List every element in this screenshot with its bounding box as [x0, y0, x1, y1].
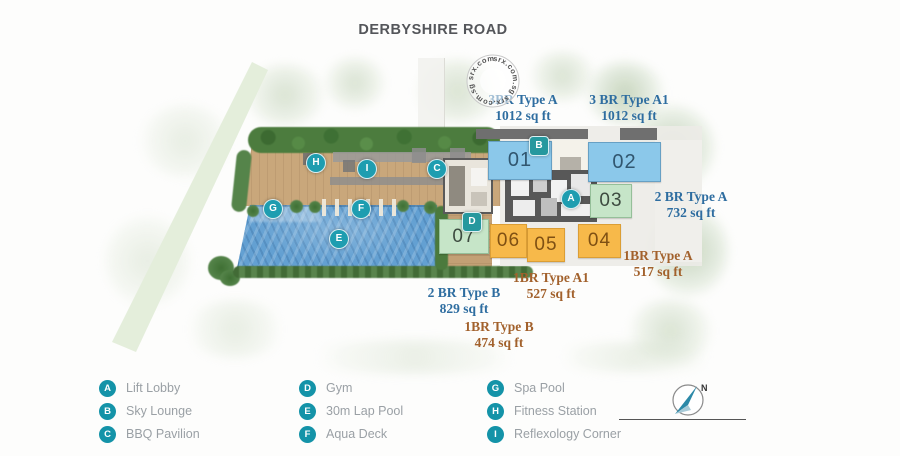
legend-item-lap-pool: E 30m Lap Pool	[299, 402, 403, 420]
legend-item-gym: D Gym	[299, 379, 352, 397]
watermark-stamp: srx.com.sg srx.com.sg srx.com.sg	[456, 44, 530, 118]
gym-room	[471, 168, 487, 186]
gym-room	[471, 192, 487, 206]
building-wall	[620, 128, 657, 140]
core-room	[513, 200, 535, 216]
legend-label: 30m Lap Pool	[326, 404, 403, 418]
legend-item-bbq-pavilion: C BBQ Pavilion	[99, 425, 200, 443]
page-title: DERBYSHIRE ROAD	[333, 22, 533, 38]
site-plan-page: 01 02 03 04 05 06 07 A B C D E F G H I 3…	[0, 0, 900, 456]
legend-item-lift-lobby: A Lift Lobby	[99, 379, 180, 397]
legend-badge-g: G	[487, 380, 504, 397]
unit-box-05: 05	[527, 228, 565, 262]
unit-box-06: 06	[490, 224, 527, 258]
plan-marker-fitness-station: H	[306, 153, 326, 173]
plan-marker-spa-pool: G	[263, 199, 283, 219]
unit-type-area: 474 sq ft	[424, 335, 574, 351]
unit-type-area: 829 sq ft	[389, 301, 539, 317]
legend-label: Lift Lobby	[126, 381, 180, 395]
planter	[309, 201, 321, 213]
plan-marker-aqua-deck: F	[351, 199, 371, 219]
legend-label: Sky Lounge	[126, 404, 192, 418]
plan-marker-lift-lobby: A	[561, 189, 581, 209]
unit-type-name: 2 BR Type B	[389, 285, 539, 301]
plan-marker-sky-lounge: B	[529, 136, 549, 156]
legend-item-fitness-station: H Fitness Station	[487, 402, 597, 420]
unit-type-name: 1BR Type B	[424, 319, 574, 335]
legend-badge-a: A	[99, 380, 116, 397]
compass-north-label: N	[701, 383, 708, 393]
unit-type-label-3br-a1: 3 BR Type A1 1012 sq ft	[554, 92, 704, 124]
tree-blob	[185, 300, 285, 358]
planter	[397, 200, 409, 212]
unit-type-label-2br-a: 2 BR Type A 732 sq ft	[616, 189, 766, 221]
legend-label: Spa Pool	[514, 381, 565, 395]
plan-marker-lap-pool: E	[329, 229, 349, 249]
unit-type-label-2br-b: 2 BR Type B 829 sq ft	[389, 285, 539, 317]
legend-badge-e: E	[299, 403, 316, 420]
compass-north-arrow: N	[648, 374, 728, 424]
lounge-chair	[412, 148, 426, 163]
planter	[247, 205, 259, 217]
legend-label: Gym	[326, 381, 352, 395]
tree-blob	[325, 58, 385, 108]
deck-table	[343, 160, 355, 172]
legend-badge-i: I	[487, 426, 504, 443]
unit-type-name: 1BR Type A	[583, 248, 733, 264]
planter	[290, 200, 303, 213]
legend-label: BBQ Pavilion	[126, 427, 200, 441]
unit-box-02: 02	[588, 142, 661, 182]
plan-marker-reflexology-corner: I	[357, 159, 377, 179]
plan-marker-gym: D	[462, 212, 482, 232]
unit-type-label-1br-b: 1BR Type B 474 sq ft	[424, 319, 574, 351]
legend-item-reflexology-corner: I Reflexology Corner	[487, 425, 621, 443]
compass-baseline	[619, 419, 746, 420]
legend-badge-c: C	[99, 426, 116, 443]
legend-badge-b: B	[99, 403, 116, 420]
gym-room	[449, 166, 465, 206]
legend-label: Reflexology Corner	[514, 427, 621, 441]
legend-label: Fitness Station	[514, 404, 597, 418]
legend-badge-f: F	[299, 426, 316, 443]
core-room	[541, 198, 557, 216]
legend-item-aqua-deck: F Aqua Deck	[299, 425, 387, 443]
legend-label: Aqua Deck	[326, 427, 387, 441]
unit-type-name: 1BR Type A1	[476, 270, 626, 286]
unit-type-area: 1012 sq ft	[554, 108, 704, 124]
unit-type-name: 2 BR Type A	[616, 189, 766, 205]
plan-marker-bbq-pavilion: C	[427, 159, 447, 179]
unit-type-area: 732 sq ft	[616, 205, 766, 221]
legend-item-spa-pool: G Spa Pool	[487, 379, 565, 397]
unit-type-name: 3 BR Type A1	[554, 92, 704, 108]
legend-badge-d: D	[299, 380, 316, 397]
legend-badge-h: H	[487, 403, 504, 420]
legend-item-sky-lounge: B Sky Lounge	[99, 402, 192, 420]
